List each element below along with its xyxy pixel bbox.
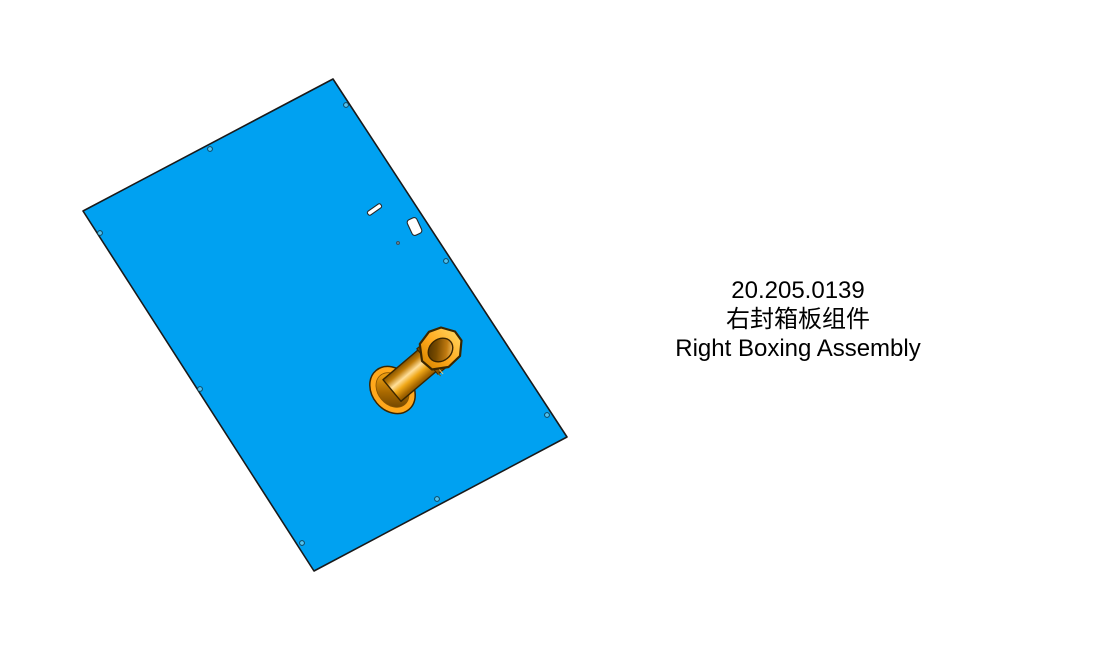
mounting-hole [198, 387, 203, 392]
pilot-hole-dot [397, 242, 400, 245]
mounting-hole [435, 497, 440, 502]
panel [83, 79, 567, 571]
cad-viewport [0, 0, 660, 661]
part-name-cn: 右封箱板组件 [598, 305, 998, 334]
title-block: 20.205.0139 右封箱板组件 Right Boxing Assembly [598, 276, 998, 363]
mounting-hole [300, 541, 305, 546]
mounting-hole [545, 413, 550, 418]
mounting-hole [208, 147, 213, 152]
part-number: 20.205.0139 [598, 276, 998, 305]
mounting-hole [444, 259, 449, 264]
mounting-hole [344, 103, 349, 108]
panel-face [83, 79, 567, 571]
part-name-en: Right Boxing Assembly [598, 334, 998, 363]
page: 20.205.0139 右封箱板组件 Right Boxing Assembly [0, 0, 1116, 661]
mounting-hole [98, 231, 103, 236]
